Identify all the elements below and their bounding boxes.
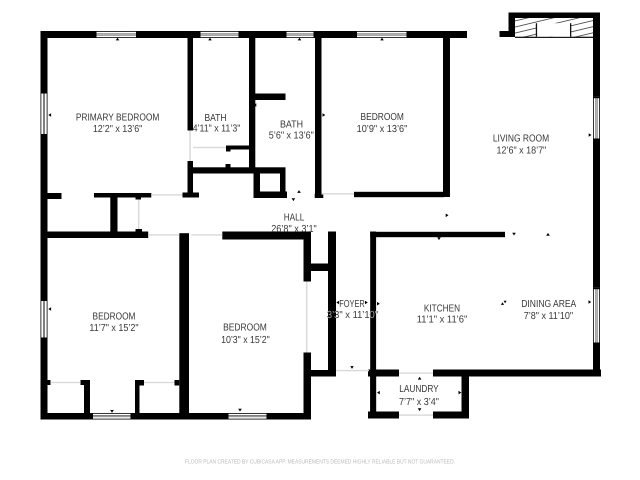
svg-text:12’6" x 18’7": 12’6" x 18’7" <box>497 146 547 157</box>
svg-text:BEDROOM: BEDROOM <box>223 322 267 333</box>
svg-text:LIVING ROOM: LIVING ROOM <box>493 133 549 144</box>
svg-text:PRIMARY BEDROOM: PRIMARY BEDROOM <box>76 113 160 124</box>
svg-text:HALL: HALL <box>284 213 305 224</box>
svg-text:10’9" x 13’6": 10’9" x 13’6" <box>357 124 408 135</box>
svg-text:7’7" x 3’4": 7’7" x 3’4" <box>399 397 439 408</box>
svg-text:11’7" x 15’2": 11’7" x 15’2" <box>89 323 139 334</box>
svg-text:BEDROOM: BEDROOM <box>361 112 404 123</box>
svg-text:BATH: BATH <box>205 113 227 124</box>
svg-text:12’2" x 13’6": 12’2" x 13’6" <box>93 124 143 135</box>
svg-text:BEDROOM: BEDROOM <box>93 312 136 323</box>
svg-text:10’3" x 15’2": 10’3" x 15’2" <box>221 335 270 346</box>
svg-text:11’1" x 11’6": 11’1" x 11’6" <box>417 315 468 326</box>
svg-text:BATH: BATH <box>280 119 303 130</box>
svg-text:FOYER: FOYER <box>339 299 365 310</box>
svg-text:7’8" x 11’10": 7’8" x 11’10" <box>524 311 574 322</box>
svg-text:KITCHEN: KITCHEN <box>424 303 460 314</box>
svg-text:26’8" x 3’1": 26’8" x 3’1" <box>271 224 317 235</box>
svg-text:4’11" x 11’3": 4’11" x 11’3" <box>193 124 241 135</box>
svg-text:LAUNDRY: LAUNDRY <box>399 384 439 395</box>
svg-text:FLOOR PLAN CREATED BY CUBICASA: FLOOR PLAN CREATED BY CUBICASA APP. MEAS… <box>185 459 455 466</box>
svg-text:5’6" x 13’6": 5’6" x 13’6" <box>269 131 314 142</box>
svg-text:DINING AREA: DINING AREA <box>521 299 576 310</box>
